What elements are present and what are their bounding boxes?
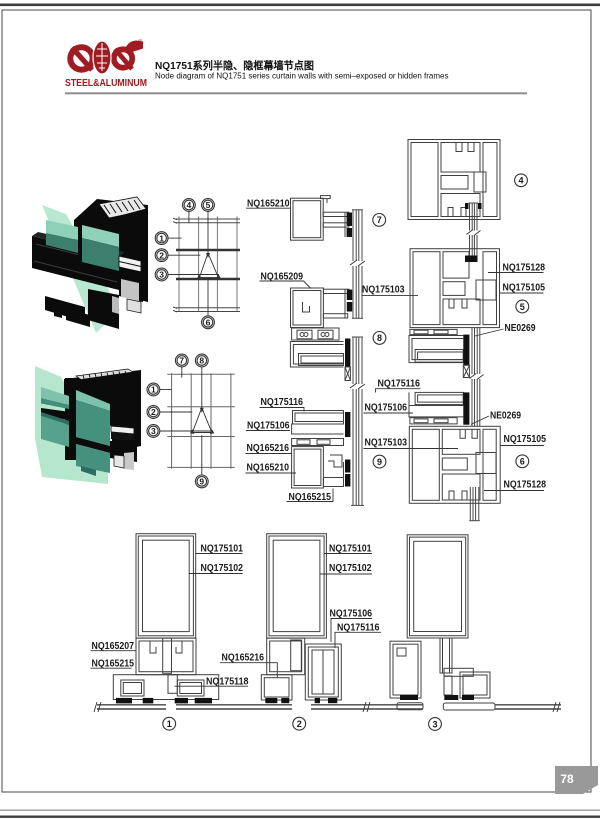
svg-text:7: 7 <box>179 356 184 366</box>
svg-text:Node diagram of NQ1751 series: Node diagram of NQ1751 series curtain wa… <box>155 72 448 81</box>
svg-text:NE0269: NE0269 <box>490 411 521 422</box>
svg-text:NQ175101: NQ175101 <box>329 544 372 555</box>
svg-text:8: 8 <box>377 333 382 343</box>
svg-text:NQ165216: NQ165216 <box>222 653 265 664</box>
svg-text:9: 9 <box>377 457 382 467</box>
svg-text:5: 5 <box>206 200 211 210</box>
svg-text:1: 1 <box>151 385 156 395</box>
svg-text:NQ175103: NQ175103 <box>362 285 405 296</box>
svg-text:NQ175103: NQ175103 <box>365 438 408 449</box>
svg-text:NQ175116: NQ175116 <box>261 397 304 408</box>
svg-text:NQ175106: NQ175106 <box>365 403 408 414</box>
svg-text:NQ175106: NQ175106 <box>247 421 290 432</box>
svg-text:4: 4 <box>518 176 523 186</box>
svg-text:3: 3 <box>151 426 156 436</box>
svg-text:NQ175105: NQ175105 <box>504 434 547 445</box>
svg-text:3: 3 <box>432 719 437 729</box>
svg-text:NQ175128: NQ175128 <box>504 480 547 491</box>
svg-text:NQ175102: NQ175102 <box>329 563 372 574</box>
svg-text:NQ175128: NQ175128 <box>503 263 546 274</box>
svg-text:STEEL&ALUMINUM: STEEL&ALUMINUM <box>65 78 147 89</box>
svg-text:NQ175101: NQ175101 <box>201 544 244 555</box>
svg-text:3: 3 <box>159 270 164 280</box>
svg-text:8: 8 <box>199 356 204 366</box>
svg-text:78: 78 <box>560 772 574 786</box>
svg-text:NE0269: NE0269 <box>505 323 536 334</box>
svg-text:1: 1 <box>159 233 164 243</box>
svg-text:1: 1 <box>167 719 172 729</box>
svg-text:2: 2 <box>297 719 302 729</box>
svg-text:9: 9 <box>199 477 204 487</box>
svg-text:NQ165216: NQ165216 <box>247 443 290 454</box>
svg-text:NQ175105: NQ175105 <box>503 283 546 294</box>
svg-text:4: 4 <box>187 200 192 210</box>
svg-text:6: 6 <box>520 457 525 467</box>
svg-text:2: 2 <box>159 250 164 260</box>
svg-text:6: 6 <box>206 318 211 328</box>
svg-text:NQ175102: NQ175102 <box>201 563 244 574</box>
svg-text:NQ175116: NQ175116 <box>378 379 421 390</box>
svg-text:7: 7 <box>377 215 382 225</box>
svg-text:NQ1751系列半隐、隐框幕墙节点图: NQ1751系列半隐、隐框幕墙节点图 <box>155 59 314 72</box>
svg-text:2: 2 <box>151 407 156 417</box>
svg-text:NQ175106: NQ175106 <box>330 609 373 620</box>
svg-text:NQ165210: NQ165210 <box>247 463 290 474</box>
svg-text:5: 5 <box>520 302 525 312</box>
svg-text:®: ® <box>138 39 143 46</box>
